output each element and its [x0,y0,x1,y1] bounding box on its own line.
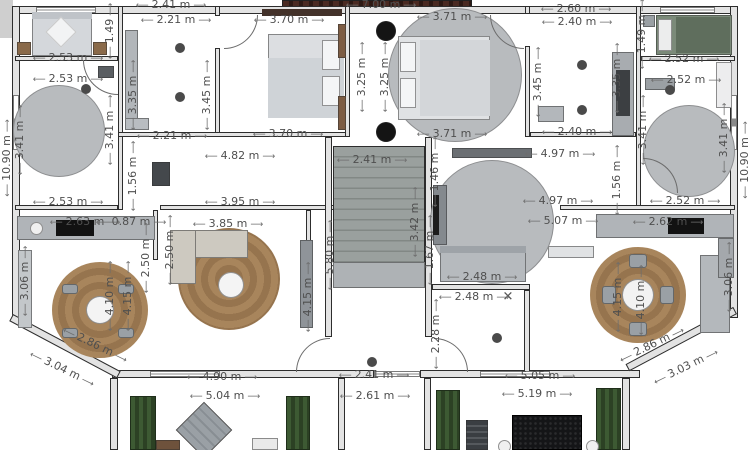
dimension-label: 2.48 m [439,291,510,303]
ceiling-light-dot [81,84,91,94]
dimension-label: 2.41 m [337,154,408,166]
dimension-label: 2.52 m [649,53,720,65]
media-shelf[interactable] [452,148,532,158]
single-bed-green-blanket [676,17,730,53]
dimension-label: 3.41 m [14,105,26,176]
dimension-label: 2.50 m [164,215,176,286]
dimension-label: 4.15 m [302,262,314,333]
plant-pot[interactable] [376,21,396,41]
dimension-label: 3.71 m [417,11,488,23]
dimension-label: 3.06 m [723,242,735,313]
wardrobe-column[interactable] [338,96,346,130]
dimension-label: 4.10 m [104,261,116,332]
double-bed-right-blanket [420,40,490,116]
nightstand[interactable] [17,42,31,55]
dimension-label: 1.46 m [429,137,441,208]
wall-room221-right-a [215,6,220,16]
dimension-label: 2.62 m [633,216,704,228]
outdoor-side-table[interactable] [156,440,180,450]
coffee-table-white[interactable] [218,272,244,298]
dimension-label: 4.15 m [612,262,624,333]
dimension-label: 3.45 m [532,47,544,118]
ceiling-light-dot [577,60,587,70]
ceiling-light-dot [367,357,377,367]
dimension-label: 7.00 m [346,0,417,11]
dimension-label: 3.45 m [201,60,213,131]
dimension-label: 1.49 m [636,0,648,69]
terrace-wall [424,378,431,450]
terrace-wall [622,378,630,450]
dimension-label: 2.21 m [137,130,208,142]
outdoor-wicker-sofa[interactable] [512,415,582,450]
chair[interactable] [660,286,674,304]
dimension-label: 4.90 m [187,371,258,383]
dimension-label: 3.95 m [205,196,276,208]
dimension-label: 3.71 m [417,128,488,140]
kitchen-sink [30,222,43,235]
dimension-label: 2.52 m [650,195,721,207]
ceiling-light-dot [175,43,185,53]
dimension-label: 2.40 m [542,126,613,138]
round-rug-grey-left[interactable] [13,85,105,177]
window[interactable] [660,7,715,13]
door-arc[interactable] [296,338,330,372]
dimension-label: 1.49 [104,3,116,59]
dimension-label: 5.07 m [528,215,599,227]
dimension-label: 5.05 m [505,370,576,382]
dimension-label: 3.42 m [409,187,421,258]
kitchen-island-right[interactable] [548,246,594,258]
wall-corridor-right [524,290,530,372]
dimension-label: 3.06 m [19,246,31,317]
dimension-label: 3.70 m [254,14,325,26]
dimension-label: 3.41 m [637,95,649,166]
pillow [658,19,672,51]
dimension-label: 3.41 m [718,103,730,174]
dimension-label: 4.97 m [523,195,594,207]
floor-plan-canvas: ✕ 2.41 m7.00 m2.60 m2.21 m3.70 m3.71 m2.… [0,0,750,450]
terrace-wall [338,378,345,450]
outdoor-round-table[interactable] [498,440,511,450]
dimension-label: 5.80 m [324,220,336,291]
stair-landing[interactable] [333,262,425,288]
dimension-label: 2.60 m [541,3,612,15]
dimension-label: 2.41 m [136,0,207,11]
hedge[interactable] [130,396,156,450]
hedge[interactable] [436,390,460,450]
dimension-label: 10.90 m [1,119,13,197]
hall-cabinet[interactable] [152,162,170,186]
dimension-label: 2.52 m [651,74,722,86]
dimension-label: 3.35 m [611,43,623,114]
dimension-label: 2.53 m [33,73,104,85]
dimension-label: 2.53 m [33,52,104,64]
wall-bedroomR-right-a [525,6,530,14]
plant-pot[interactable] [376,122,396,142]
dimension-label: 10.90 m [739,121,750,199]
dimension-label: 2.61 m [340,390,411,402]
dimension-label: 3.41 m [104,95,116,166]
wall-bedroomR-right-b [525,46,530,137]
hedge[interactable] [286,396,310,450]
dimension-label: 1.56 m [127,141,139,212]
ceiling-light-dot [577,105,587,115]
chair[interactable] [62,284,78,294]
dimension-label: 1.67 m [424,215,436,286]
dimension-label: 2.50 m [140,223,152,294]
outdoor-table-white[interactable] [252,438,278,450]
wardrobe-column[interactable] [338,24,346,58]
ceiling-light-dot [492,333,502,343]
dimension-label: 2.28 m [430,299,442,370]
outdoor-daybed[interactable] [176,402,233,450]
dimension-label: 3.25 m [379,42,391,113]
outdoor-lounge-chair[interactable] [466,420,488,450]
dimension-label: 3.70 m [253,128,324,140]
terrace-wall [110,378,118,450]
dimension-label: 3.85 m [193,218,264,230]
wall-left-column [118,6,123,210]
dimension-label: 3.35 m [127,60,139,131]
dimension-label: 2.53 m [33,196,104,208]
ceiling-light-dot [665,85,675,95]
dimension-label: 2.41 m [339,369,410,381]
wall-room221-right-b [215,48,220,137]
hedge[interactable] [596,388,621,450]
ceiling-light-dot [175,92,185,102]
dimension-label: 4.15 m [122,261,134,332]
dimension-label: 5.04 m [190,390,261,402]
sofa-back [440,246,526,253]
dimension-label: 4.97 m [525,148,596,160]
dimension-label: 2.40 m [542,16,613,28]
dimension-label: 0.87 m [96,216,167,228]
dimension-label: 4.82 m [205,150,276,162]
pillow [400,78,416,108]
dimension-label: 1.56 m [611,145,623,216]
dimension-label: 2.48 m [447,271,518,283]
dimension-label: 2.21 m [141,14,212,26]
dimension-label: 5.19 m [502,388,573,400]
dimension-label: 4.10 m [635,265,647,336]
outdoor-round-table[interactable] [586,440,599,450]
dimension-label: 3.25 m [356,42,368,113]
pillow [400,42,416,72]
